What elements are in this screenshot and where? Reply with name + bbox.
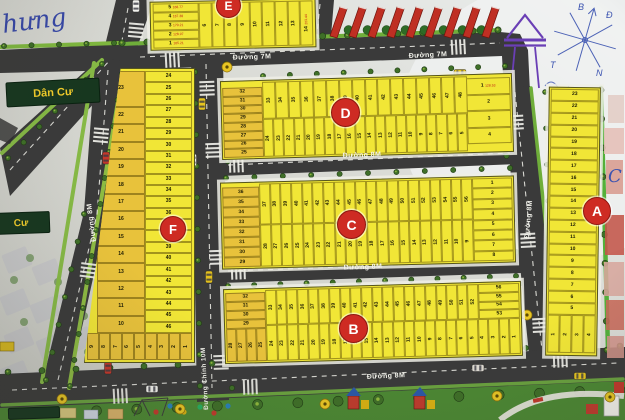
plot-number: 42 <box>166 279 172 284</box>
plot-number: 5 <box>168 5 171 10</box>
plot-number: 6 <box>571 295 574 300</box>
plot-number: 46 <box>166 325 172 330</box>
plot-cell: 53 <box>479 309 520 319</box>
plot-area: 128.97 <box>173 33 183 37</box>
block-badge-a: A <box>583 197 611 225</box>
plot-number: 19 <box>317 133 322 139</box>
plot-cell: 40 <box>145 253 192 264</box>
plot-number: 47 <box>417 300 422 306</box>
block-b: 3231302928272625333435363738394041424344… <box>223 281 523 364</box>
plot-number: 5 <box>470 336 475 339</box>
plot-area: 170.21 <box>173 24 183 28</box>
plot-number: 35 <box>166 199 172 204</box>
plot-cell: 42 <box>377 78 391 115</box>
plot-number: 38 <box>330 96 335 102</box>
plot-number: 2 <box>491 191 494 196</box>
plot-number: 42 <box>382 94 387 100</box>
plot-number: 37 <box>311 303 316 309</box>
block-c-stack_right: 12345678 <box>472 177 514 261</box>
plot-number: 24 <box>269 340 274 346</box>
plot-number: 16 <box>348 133 353 139</box>
plot-cell: 20 <box>550 124 598 137</box>
plot-number: 10 <box>417 336 422 342</box>
plot-cell: 7 <box>110 333 122 360</box>
plot-number: 43 <box>326 200 331 206</box>
plot-cell: 22 <box>97 107 145 124</box>
plot-cell: 29 <box>224 257 261 268</box>
plot-number: 45 <box>420 93 425 99</box>
plot-cell: 34 <box>275 81 289 118</box>
plot-number: 31 <box>166 154 172 159</box>
block-c-stack_left: 3635343332313029 <box>222 187 261 268</box>
plot-number: 27 <box>239 342 244 348</box>
block-e-stack: 5168.774187.383170.212128.971105.21 <box>153 3 200 49</box>
plot-number: 13 <box>118 270 124 275</box>
plot-cell: 14 <box>97 246 145 263</box>
plot-number: 51 <box>460 299 465 305</box>
plot-number: 22 <box>290 339 295 345</box>
plot-number: 13 <box>570 211 576 216</box>
plot-number: 11 <box>570 235 575 240</box>
plot-number: 43 <box>394 94 399 100</box>
plot-number: 40 <box>343 302 348 308</box>
plot-cell: 33 <box>145 174 192 185</box>
plot-number: 7 <box>215 23 220 26</box>
plot-cell: 35 <box>288 81 302 118</box>
pen-letter-mark: C <box>608 166 622 187</box>
plot-number: 18 <box>327 133 332 139</box>
plot-number: 53 <box>433 197 438 203</box>
plot-cell: 27 <box>145 105 192 116</box>
plot-number: 4 <box>488 133 491 138</box>
plot-number: 43 <box>166 291 172 296</box>
plot-cell: 13 <box>287 1 301 46</box>
plot-number: 33 <box>268 304 273 310</box>
plot-number: 10 <box>455 238 460 244</box>
plot-number: 16 <box>571 176 577 181</box>
block-b-bottom: 242322212019181716151413121110987654321 <box>266 318 521 361</box>
plot-cell: 19 <box>97 159 145 176</box>
plot-number: 26 <box>241 142 247 147</box>
plot-cell: 12 <box>275 1 289 46</box>
plot-number: 41 <box>369 95 374 101</box>
plot-number: 34 <box>238 210 244 215</box>
plot-number: 9 <box>241 23 246 26</box>
plot-number: 44 <box>385 301 390 307</box>
plot-number: 49 <box>390 198 395 204</box>
plot-number: 3 <box>575 333 580 336</box>
block-f: 2322212019181716151413121110242526272829… <box>84 68 195 363</box>
plot-cell: 4 <box>583 315 596 353</box>
plot-cell: 2 <box>559 315 572 353</box>
plot-number: 8 <box>429 132 434 135</box>
plot-cell: 5 <box>548 303 596 316</box>
plot-number: 28 <box>263 243 268 249</box>
plot-number: 33 <box>239 220 245 225</box>
plot-number: 7 <box>571 283 574 288</box>
block-badge-f: F <box>160 216 186 242</box>
plot-cell: 43 <box>390 78 404 115</box>
plot-number: 20 <box>349 241 354 247</box>
plot-cell: 10 <box>97 316 145 333</box>
plot-number: 30 <box>166 143 172 148</box>
plot-number: 45 <box>396 301 401 307</box>
plot-number: 2 <box>502 335 507 338</box>
plot-number: 21 <box>301 339 306 345</box>
plot-number: 39 <box>284 201 289 207</box>
plot-number: 52 <box>422 197 427 203</box>
plot-cell: 20 <box>97 142 145 159</box>
plot-number: 12 <box>118 287 124 292</box>
plot-number: 47 <box>369 199 374 205</box>
plot-cell: 18 <box>550 148 598 161</box>
plot-number: 9 <box>428 337 433 340</box>
plot-number: 46 <box>407 301 412 307</box>
plot-number: 34 <box>166 188 172 193</box>
plot-number: 55 <box>454 196 459 202</box>
plot-number: 39 <box>332 303 337 309</box>
plot-cell: 24 <box>145 71 192 82</box>
plot-area: 168.77 <box>173 6 183 10</box>
plot-number: 11 <box>407 336 412 341</box>
plot-number: 41 <box>354 302 359 308</box>
plot-cell: 25 <box>145 82 192 93</box>
subdivision-plan-photo: B Đ T N <box>0 0 625 420</box>
plot-cell: 25 <box>224 148 264 158</box>
plot-number: 17 <box>337 133 342 139</box>
plot-number: 4 <box>587 333 592 336</box>
plot-number: 12 <box>570 223 576 228</box>
plot-number: 14 <box>368 132 373 138</box>
plot-cell: 1105.21 <box>153 39 199 49</box>
plot-number: 3 <box>160 345 165 348</box>
plot-number: 11 <box>399 131 404 136</box>
plot-number: 16 <box>118 217 124 222</box>
plot-number: 29 <box>240 260 246 265</box>
plot-number: 14 <box>412 239 417 245</box>
plot-number: 26 <box>249 342 254 348</box>
plot-number: 5 <box>492 222 495 227</box>
plot-number: 10 <box>253 21 258 27</box>
plot-number: 15 <box>402 239 407 245</box>
plot-number: 53 <box>496 312 502 317</box>
plot-number: 4 <box>481 335 486 338</box>
plot-number: 13 <box>378 132 383 138</box>
plot-number: 5 <box>460 131 465 134</box>
plot-cell: 1 <box>180 333 192 360</box>
plot-number: 41 <box>305 200 310 206</box>
block-d-stack_right: 1128.53234 <box>466 77 512 144</box>
plot-cell: 23 <box>97 71 145 107</box>
plot-cell: 31 <box>145 151 192 162</box>
plot-number: 50 <box>449 299 454 305</box>
plot-number: 6 <box>203 24 208 27</box>
plot-number: 19 <box>359 240 364 246</box>
plot-number: 29 <box>240 116 246 121</box>
plot-number: 29 <box>166 131 172 136</box>
plot-number: 37 <box>262 201 267 207</box>
plot-number: 14 <box>118 252 124 257</box>
plot-number: 13 <box>291 20 296 26</box>
plot-cell: 1 <box>547 315 560 353</box>
plot-number: 40 <box>166 256 172 261</box>
plot-cell: 32 <box>145 162 192 173</box>
small-sign-bottom-left <box>8 406 60 420</box>
plot-number: 10 <box>409 131 414 137</box>
plot-number: 19 <box>118 165 124 170</box>
plot-number: 46 <box>433 93 438 99</box>
plot-number: 7 <box>114 345 119 348</box>
plot-number: 44 <box>337 199 342 205</box>
plot-number: 41 <box>166 268 172 273</box>
plot-cell: 16 <box>550 172 598 185</box>
plot-number: 31 <box>240 98 246 103</box>
plot-cell: 10 <box>549 243 597 256</box>
plot-number: 18 <box>370 240 375 246</box>
plot-cell: 28 <box>145 117 192 128</box>
plot-number: 3 <box>491 201 494 206</box>
plot-cell: 7 <box>548 279 596 292</box>
plot-cell: 4 <box>467 126 511 144</box>
plot-number: 40 <box>356 95 361 101</box>
plot-number: 22 <box>327 241 332 247</box>
plot-number: 32 <box>239 230 245 235</box>
plot-number: 25 <box>241 150 247 155</box>
plot-number: 21 <box>572 116 578 121</box>
plot-number: 24 <box>166 74 172 79</box>
plot-number: 48 <box>428 300 433 306</box>
plot-number: 54 <box>496 303 502 308</box>
plot-number: 3 <box>488 116 491 121</box>
plot-number: 34 <box>279 97 284 103</box>
plot-cell: 11 <box>262 1 276 46</box>
plot-number: 12 <box>396 336 401 342</box>
plot-number: 15 <box>364 337 369 343</box>
plot-number: 27 <box>166 108 172 113</box>
plot-number: 4 <box>149 345 154 348</box>
plot-number: 18 <box>118 183 124 188</box>
plot-cell: 21 <box>97 124 145 141</box>
plot-number: 14 <box>570 199 576 204</box>
block-d-top: 33343536373839404142434445464748 <box>262 76 468 119</box>
plot-number: 37 <box>318 96 323 102</box>
plot-cell: 9 <box>548 255 596 268</box>
plot-number: 1 <box>512 335 517 338</box>
plot-number: 23 <box>317 241 322 247</box>
plot-number: 21 <box>118 130 124 135</box>
plot-number: 28 <box>166 120 172 125</box>
plot-number: 4 <box>491 212 494 217</box>
plot-number: 12 <box>279 21 284 27</box>
plot-cell: 16 <box>97 211 145 228</box>
plot-number: 5 <box>137 345 142 348</box>
plot-number: 24 <box>306 242 311 248</box>
plot-cell: 3 <box>571 315 584 353</box>
plot-number: 31 <box>239 240 245 245</box>
plot-cell: 6 <box>548 291 596 304</box>
plot-cell: 35 <box>145 196 192 207</box>
plot-number: 25 <box>295 242 300 248</box>
plot-number: 38 <box>273 201 278 207</box>
plot-number: 48 <box>458 92 463 98</box>
plot-cell: 19 <box>550 136 598 149</box>
plot-number: 7 <box>449 336 454 339</box>
plot-number: 25 <box>259 342 264 348</box>
plot-number: 30 <box>240 107 246 112</box>
plot-cell: 22 <box>551 101 599 114</box>
plot-number: 9 <box>90 345 95 348</box>
plot-number: 29 <box>243 321 249 326</box>
plot-cell: 15 <box>549 184 597 197</box>
plot-cell: 18 <box>97 176 145 193</box>
plot-number: 52 <box>471 299 476 305</box>
plot-number: 38 <box>322 303 327 309</box>
plot-area: 203.44 <box>305 14 309 24</box>
plot-number: 14 <box>375 337 380 343</box>
plot-number: 25 <box>166 86 172 91</box>
plot-number: 8 <box>492 253 495 258</box>
plot-cell: 6 <box>122 333 134 360</box>
plot-cell: 26 <box>145 94 192 105</box>
plot-number: 17 <box>380 240 385 246</box>
plot-number: 45 <box>166 313 172 318</box>
plot-number: 49 <box>439 300 444 306</box>
block-c: 3635343332313029373839404142434445464748… <box>220 175 516 269</box>
plot-area: 128.53 <box>485 84 495 88</box>
plot-cell: 3 <box>157 333 169 360</box>
plot-cell: 4 <box>145 333 157 360</box>
plot-number: 20 <box>307 134 312 140</box>
residential-area-sign: Dân Cư <box>5 78 100 108</box>
plot-cell: 11 <box>549 231 597 244</box>
plot-number: 9 <box>466 239 471 242</box>
plot-number: 32 <box>166 165 172 170</box>
plot-cell: 21 <box>550 112 598 125</box>
plot-number: 19 <box>322 339 327 345</box>
plot-number: 2 <box>563 332 568 335</box>
plot-number: 15 <box>571 188 577 193</box>
plot-number: 36 <box>238 190 244 195</box>
plot-number: 5 <box>570 306 573 311</box>
plot-number: 17 <box>118 200 124 205</box>
plot-number: 23 <box>572 92 578 97</box>
plot-number: 30 <box>243 312 249 317</box>
plot-cell: 37 <box>313 80 327 117</box>
plot-number: 11 <box>444 238 449 243</box>
plot-cell: 34 <box>145 185 192 196</box>
plot-number: 11 <box>266 21 271 26</box>
plot-number: 10 <box>118 322 124 327</box>
plot-number: 20 <box>118 148 124 153</box>
plot-cell: 44 <box>145 299 192 310</box>
plot-number: 9 <box>571 259 574 264</box>
plot-cell: 23 <box>551 89 599 102</box>
plot-cell: 1 <box>509 318 521 354</box>
plot-cell: 45 <box>145 310 192 321</box>
plot-number: 3 <box>169 23 172 28</box>
plot-cell: 12 <box>97 281 145 298</box>
plot-cell: 13 <box>97 263 145 280</box>
plot-number: 7 <box>439 131 444 134</box>
plot-number: 42 <box>364 302 369 308</box>
plot-cell: 8 <box>548 267 596 280</box>
plot-number: 8 <box>571 271 574 276</box>
plot-cell: 30 <box>145 139 192 150</box>
plot-number: 51 <box>411 198 416 204</box>
plot-number: 10 <box>570 247 576 252</box>
plot-cell: 15 <box>97 229 145 246</box>
plot-number: 24 <box>266 135 271 141</box>
plot-number: 18 <box>333 338 338 344</box>
residential-area-sign-clipped: Cư <box>0 211 50 235</box>
block-f-left: 2322212019181716151413121110 <box>97 71 145 333</box>
block-c-bottom: 282726252423222120191817161514131211109 <box>260 219 474 266</box>
plot-number: 6 <box>492 232 495 237</box>
plot-cell: 29 <box>145 128 192 139</box>
plot-number: 39 <box>166 245 172 250</box>
plot-number: 6 <box>460 336 465 339</box>
plot-number: 46 <box>358 199 363 205</box>
plot-cell: 11 <box>97 298 145 315</box>
plot-number: 21 <box>297 134 302 140</box>
plot-number: 42 <box>316 200 321 206</box>
plot-cell: 17 <box>97 194 145 211</box>
block-c-top: 3738394041424344454647484950515253545556 <box>259 178 473 224</box>
plot-number: 31 <box>243 303 249 308</box>
block-f-bottom: 987654321 <box>87 333 192 360</box>
plot-number: 1 <box>169 41 172 46</box>
plot-number: 40 <box>294 200 299 206</box>
plot-cell: 44 <box>403 78 417 115</box>
plot-number: 26 <box>166 97 172 102</box>
plot-number: 32 <box>239 89 245 94</box>
plot-number: 1 <box>551 332 556 335</box>
block-badge-c: C <box>337 210 366 239</box>
plot-number: 1 <box>481 83 484 88</box>
plot-area: 187.38 <box>173 15 183 19</box>
block-d-stack_left: 3231302928272625 <box>222 87 264 158</box>
plot-number: 6 <box>125 345 130 348</box>
plot-number: 13 <box>386 337 391 343</box>
plot-number: 1 <box>491 181 494 186</box>
plot-number: 21 <box>338 241 343 247</box>
plot-cell: 45 <box>416 77 430 114</box>
plot-number: 3 <box>491 335 496 338</box>
plot-number: 50 <box>401 198 406 204</box>
plot-number: 23 <box>280 340 285 346</box>
plot-number: 20 <box>571 128 577 133</box>
plot-number: 1 <box>184 345 189 348</box>
plot-cell: 46 <box>145 322 192 333</box>
plot-number: 9 <box>419 132 424 135</box>
plot-area: 105.21 <box>173 42 183 46</box>
plot-cell: 42 <box>145 276 192 287</box>
plot-number: 44 <box>407 93 412 99</box>
block-badge-d: D <box>331 98 360 127</box>
plot-number: 16 <box>391 240 396 246</box>
plot-number: 22 <box>572 104 578 109</box>
plot-number: 33 <box>166 177 172 182</box>
plot-cell: 46 <box>428 77 442 114</box>
plot-cell: 9 <box>87 333 99 360</box>
plot-number: 13 <box>423 239 428 245</box>
plot-number: 8 <box>438 337 443 340</box>
plot-number: 26 <box>285 242 290 248</box>
plot-cell: 17 <box>550 160 598 173</box>
plot-number: 8 <box>102 345 107 348</box>
plot-number: 6 <box>450 131 455 134</box>
plot-number: 47 <box>446 92 451 98</box>
